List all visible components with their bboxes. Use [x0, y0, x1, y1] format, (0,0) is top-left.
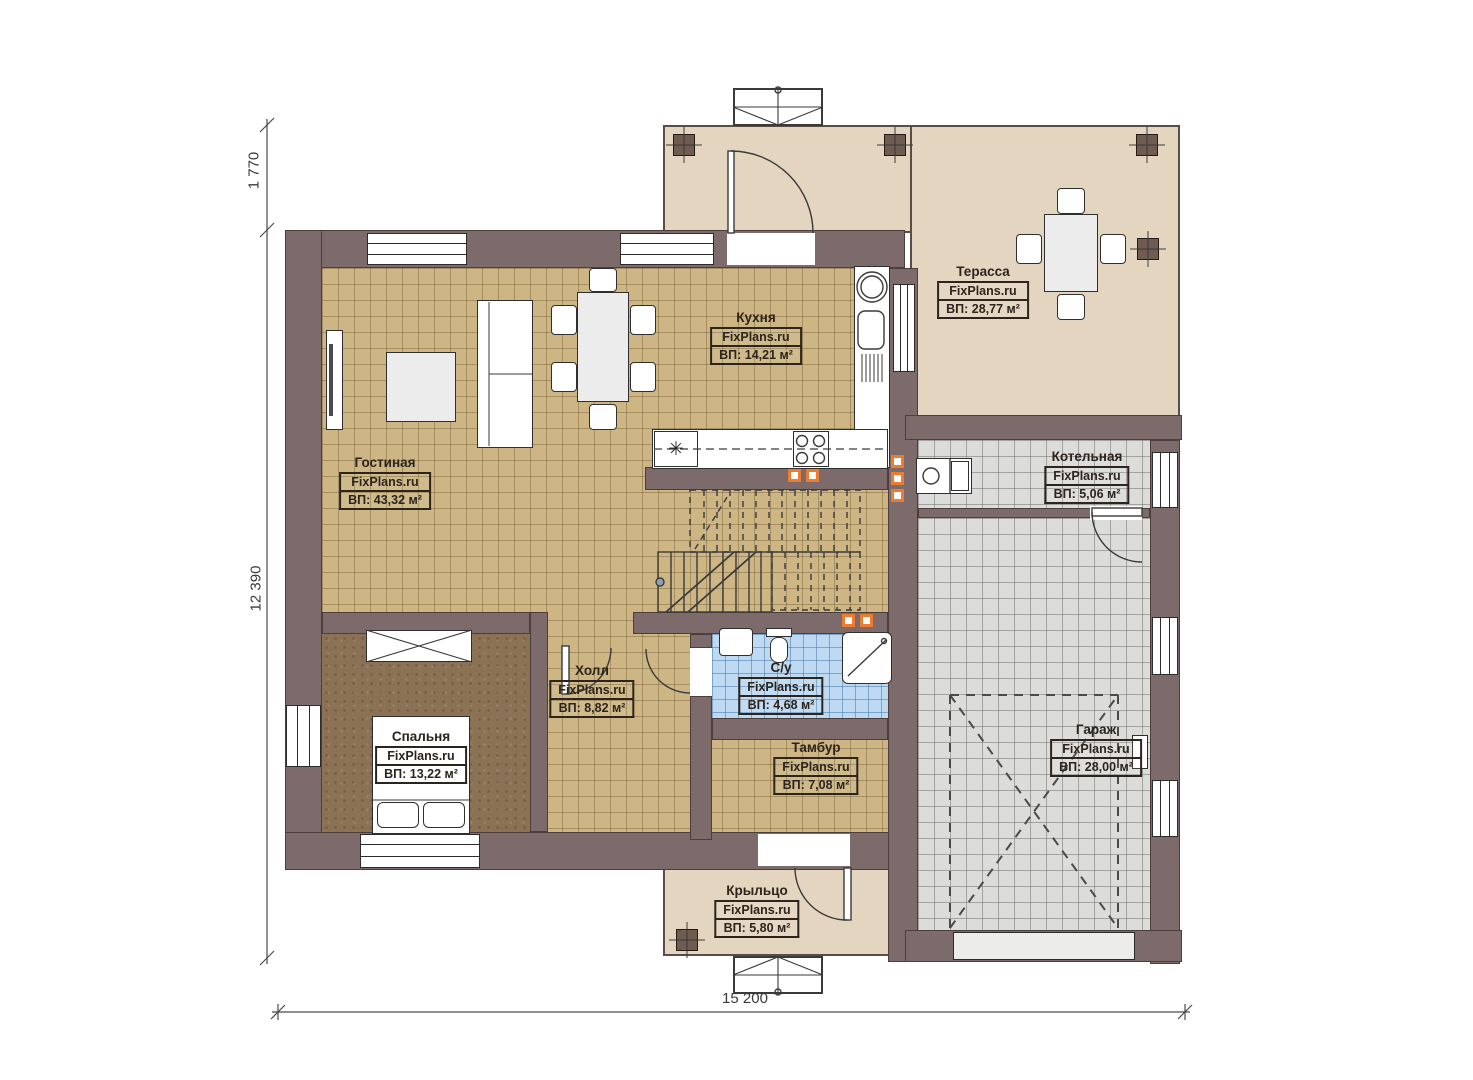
porch-post — [676, 929, 698, 951]
brand-box: FixPlans.ru — [710, 327, 802, 347]
window-kitchen-north — [620, 233, 714, 265]
terrace-floor-west — [663, 125, 920, 233]
window-living-west — [286, 705, 321, 767]
room-name: С/у — [738, 660, 823, 675]
wall-west — [285, 230, 322, 870]
terrace-chair — [1016, 234, 1042, 264]
room-name: Терасса — [937, 264, 1029, 279]
dining-chair — [589, 404, 617, 430]
boiler-unit-side — [951, 461, 969, 491]
vent-marker — [891, 455, 904, 468]
area-box: ВП: 8,82 м² — [549, 700, 634, 718]
toilet-tank — [766, 628, 792, 637]
wall-kitchen-stairs — [645, 467, 888, 490]
terrace-chair — [1100, 234, 1126, 264]
window-living-north — [367, 233, 467, 265]
dining-chair — [551, 362, 577, 392]
dimension-bottom-total: 15 200 — [700, 990, 790, 1007]
room-label-living: Гостиная FixPlans.ru ВП: 43,32 м² — [339, 455, 431, 510]
room-name: Кухня — [710, 310, 802, 325]
vent-marker — [891, 472, 904, 485]
sofa — [477, 300, 533, 448]
terrace-chair — [1057, 294, 1085, 320]
door-opening-terrace — [727, 233, 815, 265]
brand-box: FixPlans.ru — [1044, 466, 1129, 486]
terrace-post — [673, 134, 695, 156]
room-name: Крыльцо — [714, 883, 799, 898]
dining-chair — [630, 305, 656, 335]
room-label-terrace: Терасса FixPlans.ru ВП: 28,77 м² — [937, 264, 1029, 319]
dining-table — [577, 292, 629, 402]
room-label-wc: С/у FixPlans.ru ВП: 4,68 м² — [738, 660, 823, 715]
terrace-post — [1136, 134, 1158, 156]
vent-marker — [891, 489, 904, 502]
brand-box: FixPlans.ru — [549, 680, 634, 700]
window-kitchen-east — [893, 284, 915, 372]
area-box: ВП: 43,32 м² — [339, 492, 431, 510]
wall-garage-east — [1150, 440, 1180, 964]
window-garage-east-1 — [1152, 617, 1178, 675]
brand-box: FixPlans.ru — [773, 757, 858, 777]
entry-steps-top — [733, 88, 823, 126]
dining-chair — [551, 305, 577, 335]
area-box: ВП: 28,00 м² — [1050, 759, 1142, 777]
brand-box: FixPlans.ru — [375, 746, 467, 766]
vent-marker — [860, 614, 873, 627]
vent-marker — [842, 614, 855, 627]
room-label-tambour: Тамбур FixPlans.ru ВП: 7,08 м² — [773, 740, 858, 795]
room-label-bedroom: Спальня FixPlans.ru ВП: 13,22 м² — [375, 729, 467, 784]
terrace-post — [1137, 238, 1159, 260]
dining-chair — [589, 268, 617, 292]
brand-box: FixPlans.ru — [714, 900, 799, 920]
room-name: Гостиная — [339, 455, 431, 470]
kitchen-appliance: ✳ — [654, 431, 698, 467]
room-label-kitchen: Кухня FixPlans.ru ВП: 14,21 м² — [710, 310, 802, 365]
shower-tray — [842, 632, 892, 684]
wall-garage-north — [905, 415, 1182, 440]
wardrobe — [366, 630, 472, 662]
dimension-left-total: 12 390 — [248, 561, 265, 617]
area-box: ВП: 7,08 м² — [773, 777, 858, 795]
room-label-boiler: Котельная FixPlans.ru ВП: 5,06 м² — [1044, 449, 1129, 504]
dining-chair — [630, 362, 656, 392]
terrace-table — [1044, 214, 1098, 292]
area-box: ВП: 28,77 м² — [937, 301, 1029, 319]
room-name: Тамбур — [773, 740, 858, 755]
entry-steps-bottom — [733, 956, 823, 994]
brand-box: FixPlans.ru — [937, 281, 1029, 301]
dimension-left-upper: 1 770 — [246, 147, 263, 195]
room-label-porch: Крыльцо FixPlans.ru ВП: 5,80 м² — [714, 883, 799, 938]
area-box: ВП: 4,68 м² — [738, 697, 823, 715]
coffee-table — [386, 352, 456, 422]
wall-east-main — [888, 268, 918, 962]
brand-box: FixPlans.ru — [738, 677, 823, 697]
pillow — [377, 802, 419, 828]
door-opening-boiler — [1090, 506, 1142, 520]
door-opening-porch — [758, 834, 850, 866]
stove — [793, 431, 829, 467]
room-name: Гараж — [1050, 722, 1142, 737]
window-boiler-east — [1152, 452, 1178, 508]
terrace-chair — [1057, 188, 1085, 214]
vent-marker — [806, 469, 819, 482]
terrace-post — [884, 134, 906, 156]
area-box: ВП: 14,21 м² — [710, 347, 802, 365]
wall-hall-bath-top — [690, 634, 712, 648]
window-bedroom-south — [360, 834, 480, 868]
area-box: ВП: 5,80 м² — [714, 920, 799, 938]
brand-box: FixPlans.ru — [339, 472, 431, 492]
room-name: Холл — [549, 663, 634, 678]
tv-screen — [329, 344, 333, 416]
wall-bedroom-hall — [530, 612, 548, 832]
room-label-hall: Холл FixPlans.ru ВП: 8,82 м² — [549, 663, 634, 718]
garage-door — [953, 932, 1135, 960]
wall-hall-tambour — [690, 696, 712, 840]
brand-box: FixPlans.ru — [1050, 739, 1142, 759]
appliance-asterisk-icon: ✳ — [655, 432, 697, 466]
room-label-garage: Гараж FixPlans.ru ВП: 28,00 м² — [1050, 722, 1142, 777]
door-opening-bath — [690, 648, 712, 696]
room-name: Спальня — [375, 729, 467, 744]
wall-bath-south — [712, 718, 888, 740]
room-name: Котельная — [1044, 449, 1129, 464]
area-box: ВП: 13,22 м² — [375, 766, 467, 784]
area-box: ВП: 5,06 м² — [1044, 486, 1129, 504]
window-garage-east-2 — [1152, 780, 1178, 837]
vent-marker — [788, 469, 801, 482]
floor-plan: ✳ — [0, 0, 1473, 1080]
pillow — [423, 802, 465, 828]
washbasin — [719, 628, 753, 656]
